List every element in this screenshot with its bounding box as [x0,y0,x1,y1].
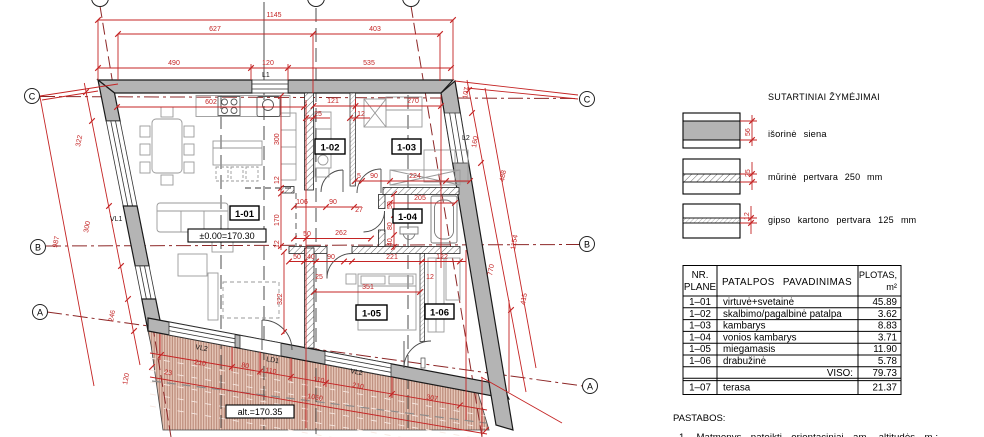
svg-text:322: 322 [277,293,284,305]
svg-text:m²: m² [886,282,897,292]
svg-text:403: 403 [369,26,381,33]
svg-text:106: 106 [296,199,308,206]
svg-text:1–06: 1–06 [689,356,711,367]
svg-text:PLOTAS,: PLOTAS, [859,270,897,280]
svg-text:1. Matmenys pateikti orien: 1. Matmenys pateikti orientaciniai am. a… [679,432,938,437]
svg-text:1-01: 1-01 [235,209,255,220]
svg-text:5: 5 [357,173,361,180]
svg-text:300: 300 [274,133,281,145]
svg-text:12: 12 [744,212,751,220]
svg-text:23: 23 [164,369,173,377]
svg-text:25: 25 [315,274,323,281]
svg-text:221: 221 [386,254,398,261]
svg-text:PLANE: PLANE [684,282,717,293]
svg-text:270: 270 [407,98,419,105]
svg-text:1-04: 1-04 [398,212,418,223]
svg-text:C: C [584,95,591,105]
svg-text:3.71: 3.71 [878,332,897,343]
svg-text:205: 205 [414,195,426,202]
svg-text:NR.: NR. [692,270,709,281]
svg-text:1–05: 1–05 [689,344,711,355]
svg-text:skalbimo/pagalbinė patalpa: skalbimo/pagalbinė patalpa [723,309,842,320]
svg-text:C: C [29,92,36,102]
svg-text:56: 56 [745,128,752,136]
svg-text:351: 351 [362,284,374,291]
svg-text:alt.=170.35: alt.=170.35 [238,407,283,417]
svg-text:8.83: 8.83 [878,321,898,332]
svg-text:11.90: 11.90 [873,344,897,355]
svg-text:išorinė siena: išorinė siena [768,129,827,139]
svg-text:SUTARTINIAI ŽYMĖJIMAI: SUTARTINIAI ŽYMĖJIMAI [768,92,880,102]
svg-text:602: 602 [205,99,217,106]
svg-text:A: A [37,308,43,318]
svg-text:224: 224 [409,173,421,180]
svg-text:5.78: 5.78 [878,356,898,367]
svg-text:80: 80 [241,362,250,370]
svg-text:50: 50 [387,201,394,209]
svg-text:535: 535 [363,60,375,67]
svg-text:50: 50 [293,254,301,261]
svg-text:vonios kambarys: vonios kambarys [723,332,797,343]
svg-text:miegamasis: miegamasis [723,344,775,355]
svg-text:50: 50 [303,231,311,238]
svg-text:B: B [584,240,590,250]
svg-text:PATALPOS PAVADINIMAS: PATALPOS PAVADINIMAS [722,277,852,288]
svg-text:490: 490 [168,60,180,67]
svg-text:gipso kartono pertvara 125: gipso kartono pertvara 125 mm [768,215,916,225]
svg-text:121: 121 [327,98,339,105]
svg-text:kambarys: kambarys [723,321,766,332]
svg-text:virtuvė+svetainė: virtuvė+svetainė [723,297,795,308]
svg-text:1–04: 1–04 [689,332,711,343]
svg-text:1145: 1145 [266,12,281,19]
svg-text:PASTABOS:: PASTABOS: [673,413,725,424]
svg-text:1-05: 1-05 [362,309,382,320]
svg-text:3.62: 3.62 [878,309,897,320]
svg-text:25: 25 [314,111,322,118]
svg-text:262: 262 [335,230,347,237]
svg-text:L1: L1 [262,72,270,79]
svg-text:B: B [35,243,41,253]
svg-text:1-06: 1-06 [430,308,449,319]
svg-text:79.73: 79.73 [872,368,897,379]
svg-text:VISO:: VISO: [827,368,853,379]
svg-text:40: 40 [307,254,315,261]
svg-text:90: 90 [370,173,378,180]
svg-text:12: 12 [357,111,365,118]
svg-text:27: 27 [355,207,363,214]
svg-text:terasa: terasa [723,383,751,394]
svg-text:21.37: 21.37 [872,383,897,394]
svg-text:627: 627 [209,26,221,33]
svg-text:1-03: 1-03 [397,143,416,154]
svg-text:L2: L2 [462,135,470,142]
svg-text:mūrinė pertvara 250 mm: mūrinė pertvara 250 mm [768,172,882,182]
svg-text:±0.00=170.30: ±0.00=170.30 [199,231,254,241]
svg-text:12: 12 [274,240,281,248]
svg-text:1–02: 1–02 [689,309,711,320]
svg-text:1–01: 1–01 [689,297,711,308]
svg-text:120: 120 [262,60,274,67]
svg-text:VL1: VL1 [110,216,123,223]
svg-text:1–03: 1–03 [689,321,711,332]
svg-text:12: 12 [274,176,281,184]
svg-text:122: 122 [436,254,448,261]
svg-text:1–07: 1–07 [689,383,711,394]
svg-text:A: A [587,382,593,392]
svg-text:25: 25 [745,169,752,177]
svg-text:1-02: 1-02 [320,143,339,154]
svg-text:90: 90 [327,254,335,261]
svg-text:45.89: 45.89 [872,297,897,308]
svg-text:12: 12 [426,274,434,281]
svg-text:90: 90 [329,199,337,206]
svg-text:40: 40 [387,238,394,246]
svg-text:drabužinė: drabužinė [723,356,767,367]
svg-text:170: 170 [274,214,281,226]
